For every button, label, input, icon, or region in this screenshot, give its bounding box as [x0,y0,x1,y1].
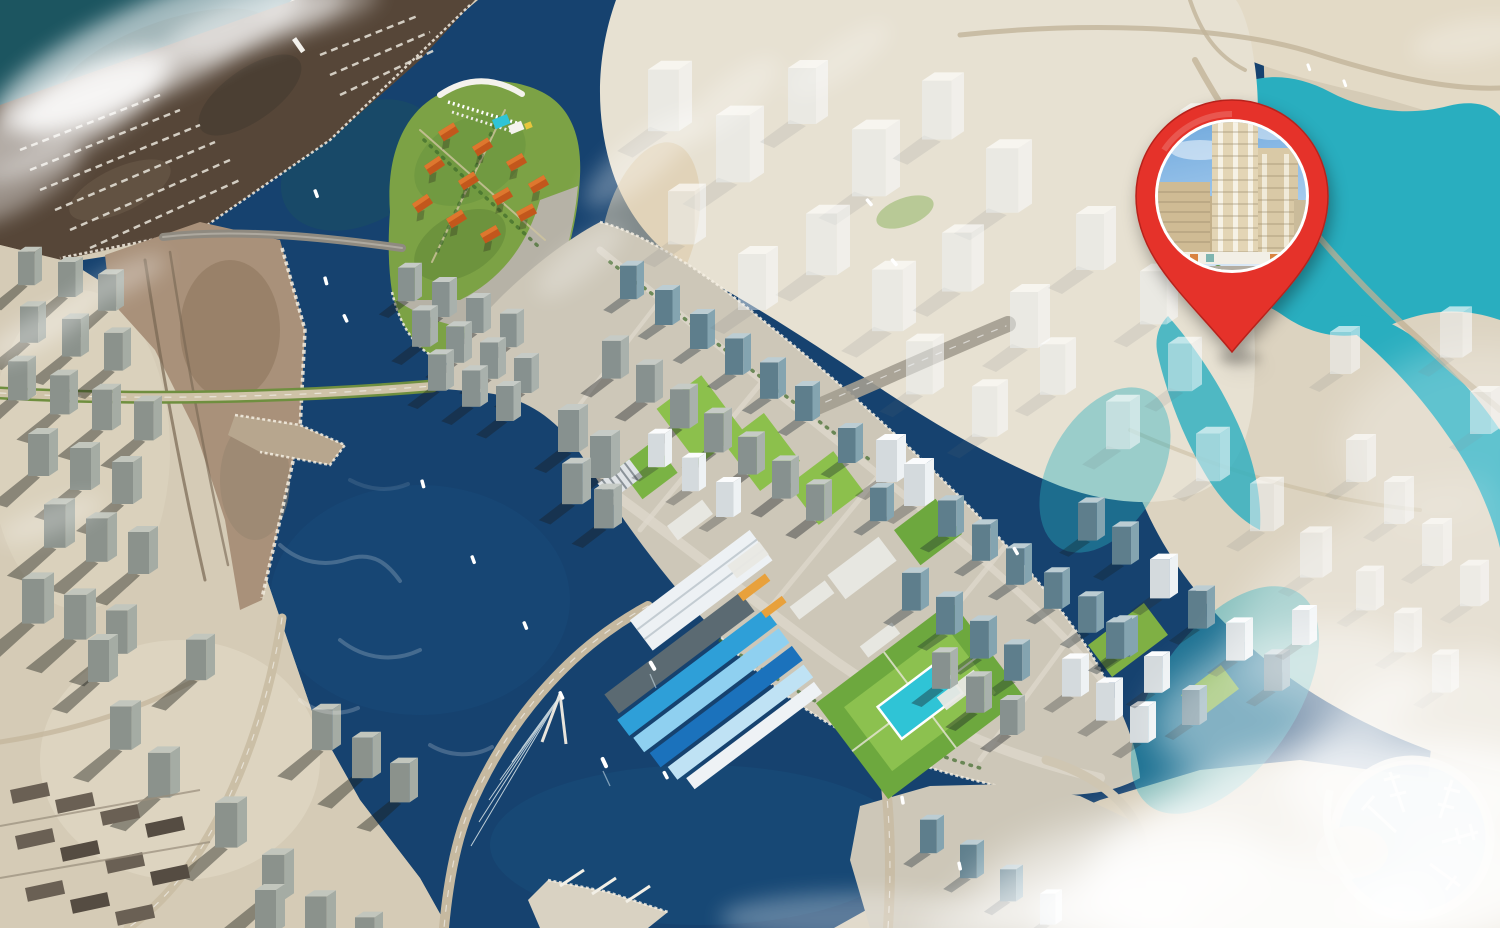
water-depth-patch [270,485,570,715]
aerial-map [0,0,1500,928]
screenshot-root [0,0,1500,928]
pin-ground-shadow [1218,351,1262,365]
